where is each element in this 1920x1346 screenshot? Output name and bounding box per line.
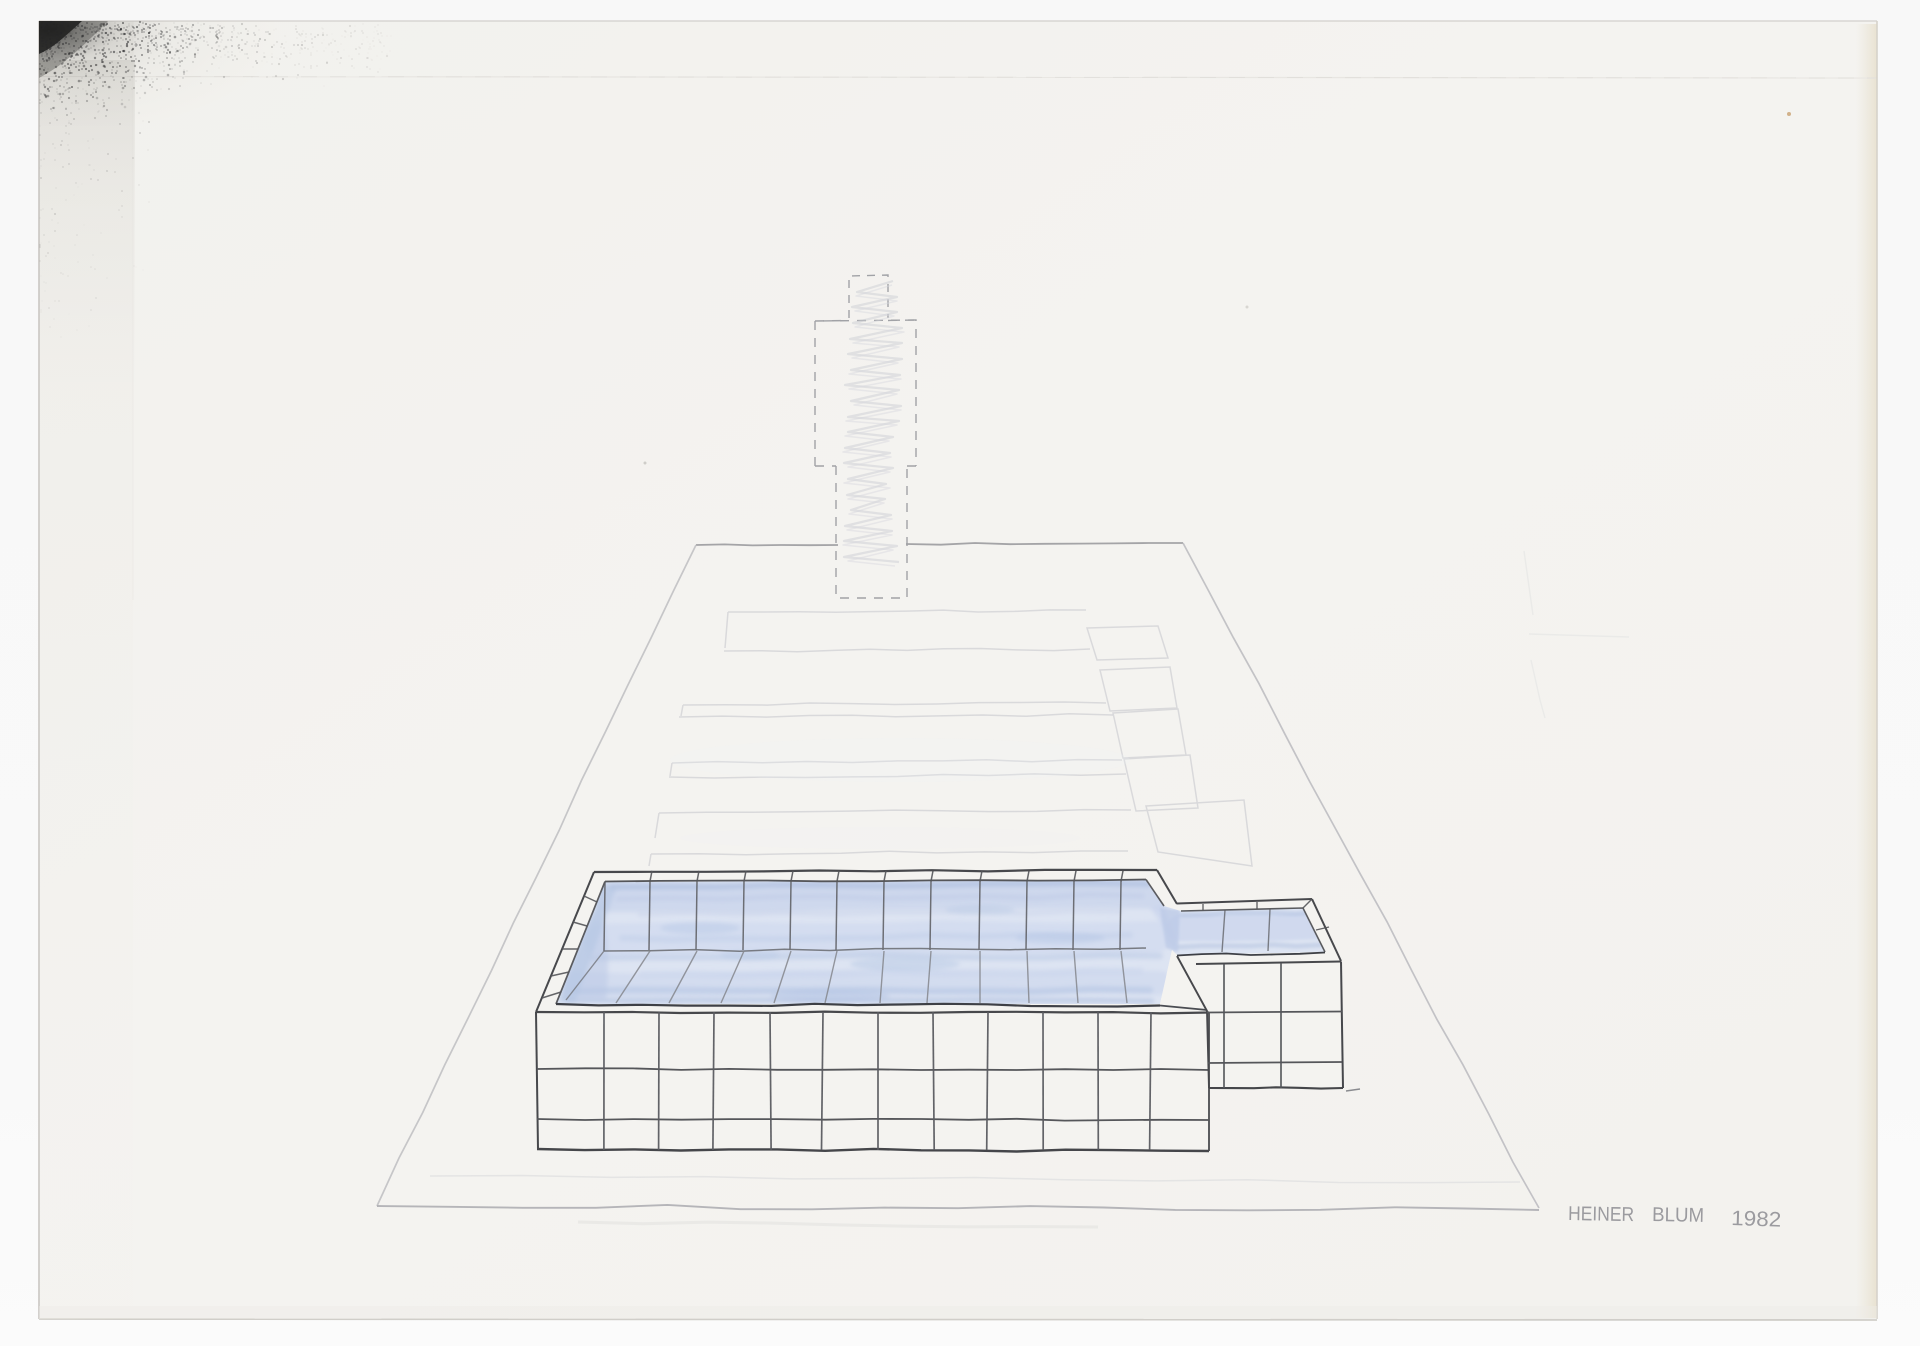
- svg-text:HEINER: HEINER: [1568, 1203, 1634, 1226]
- svg-text:1982: 1982: [1731, 1207, 1782, 1232]
- svg-text:BLUM: BLUM: [1652, 1204, 1704, 1227]
